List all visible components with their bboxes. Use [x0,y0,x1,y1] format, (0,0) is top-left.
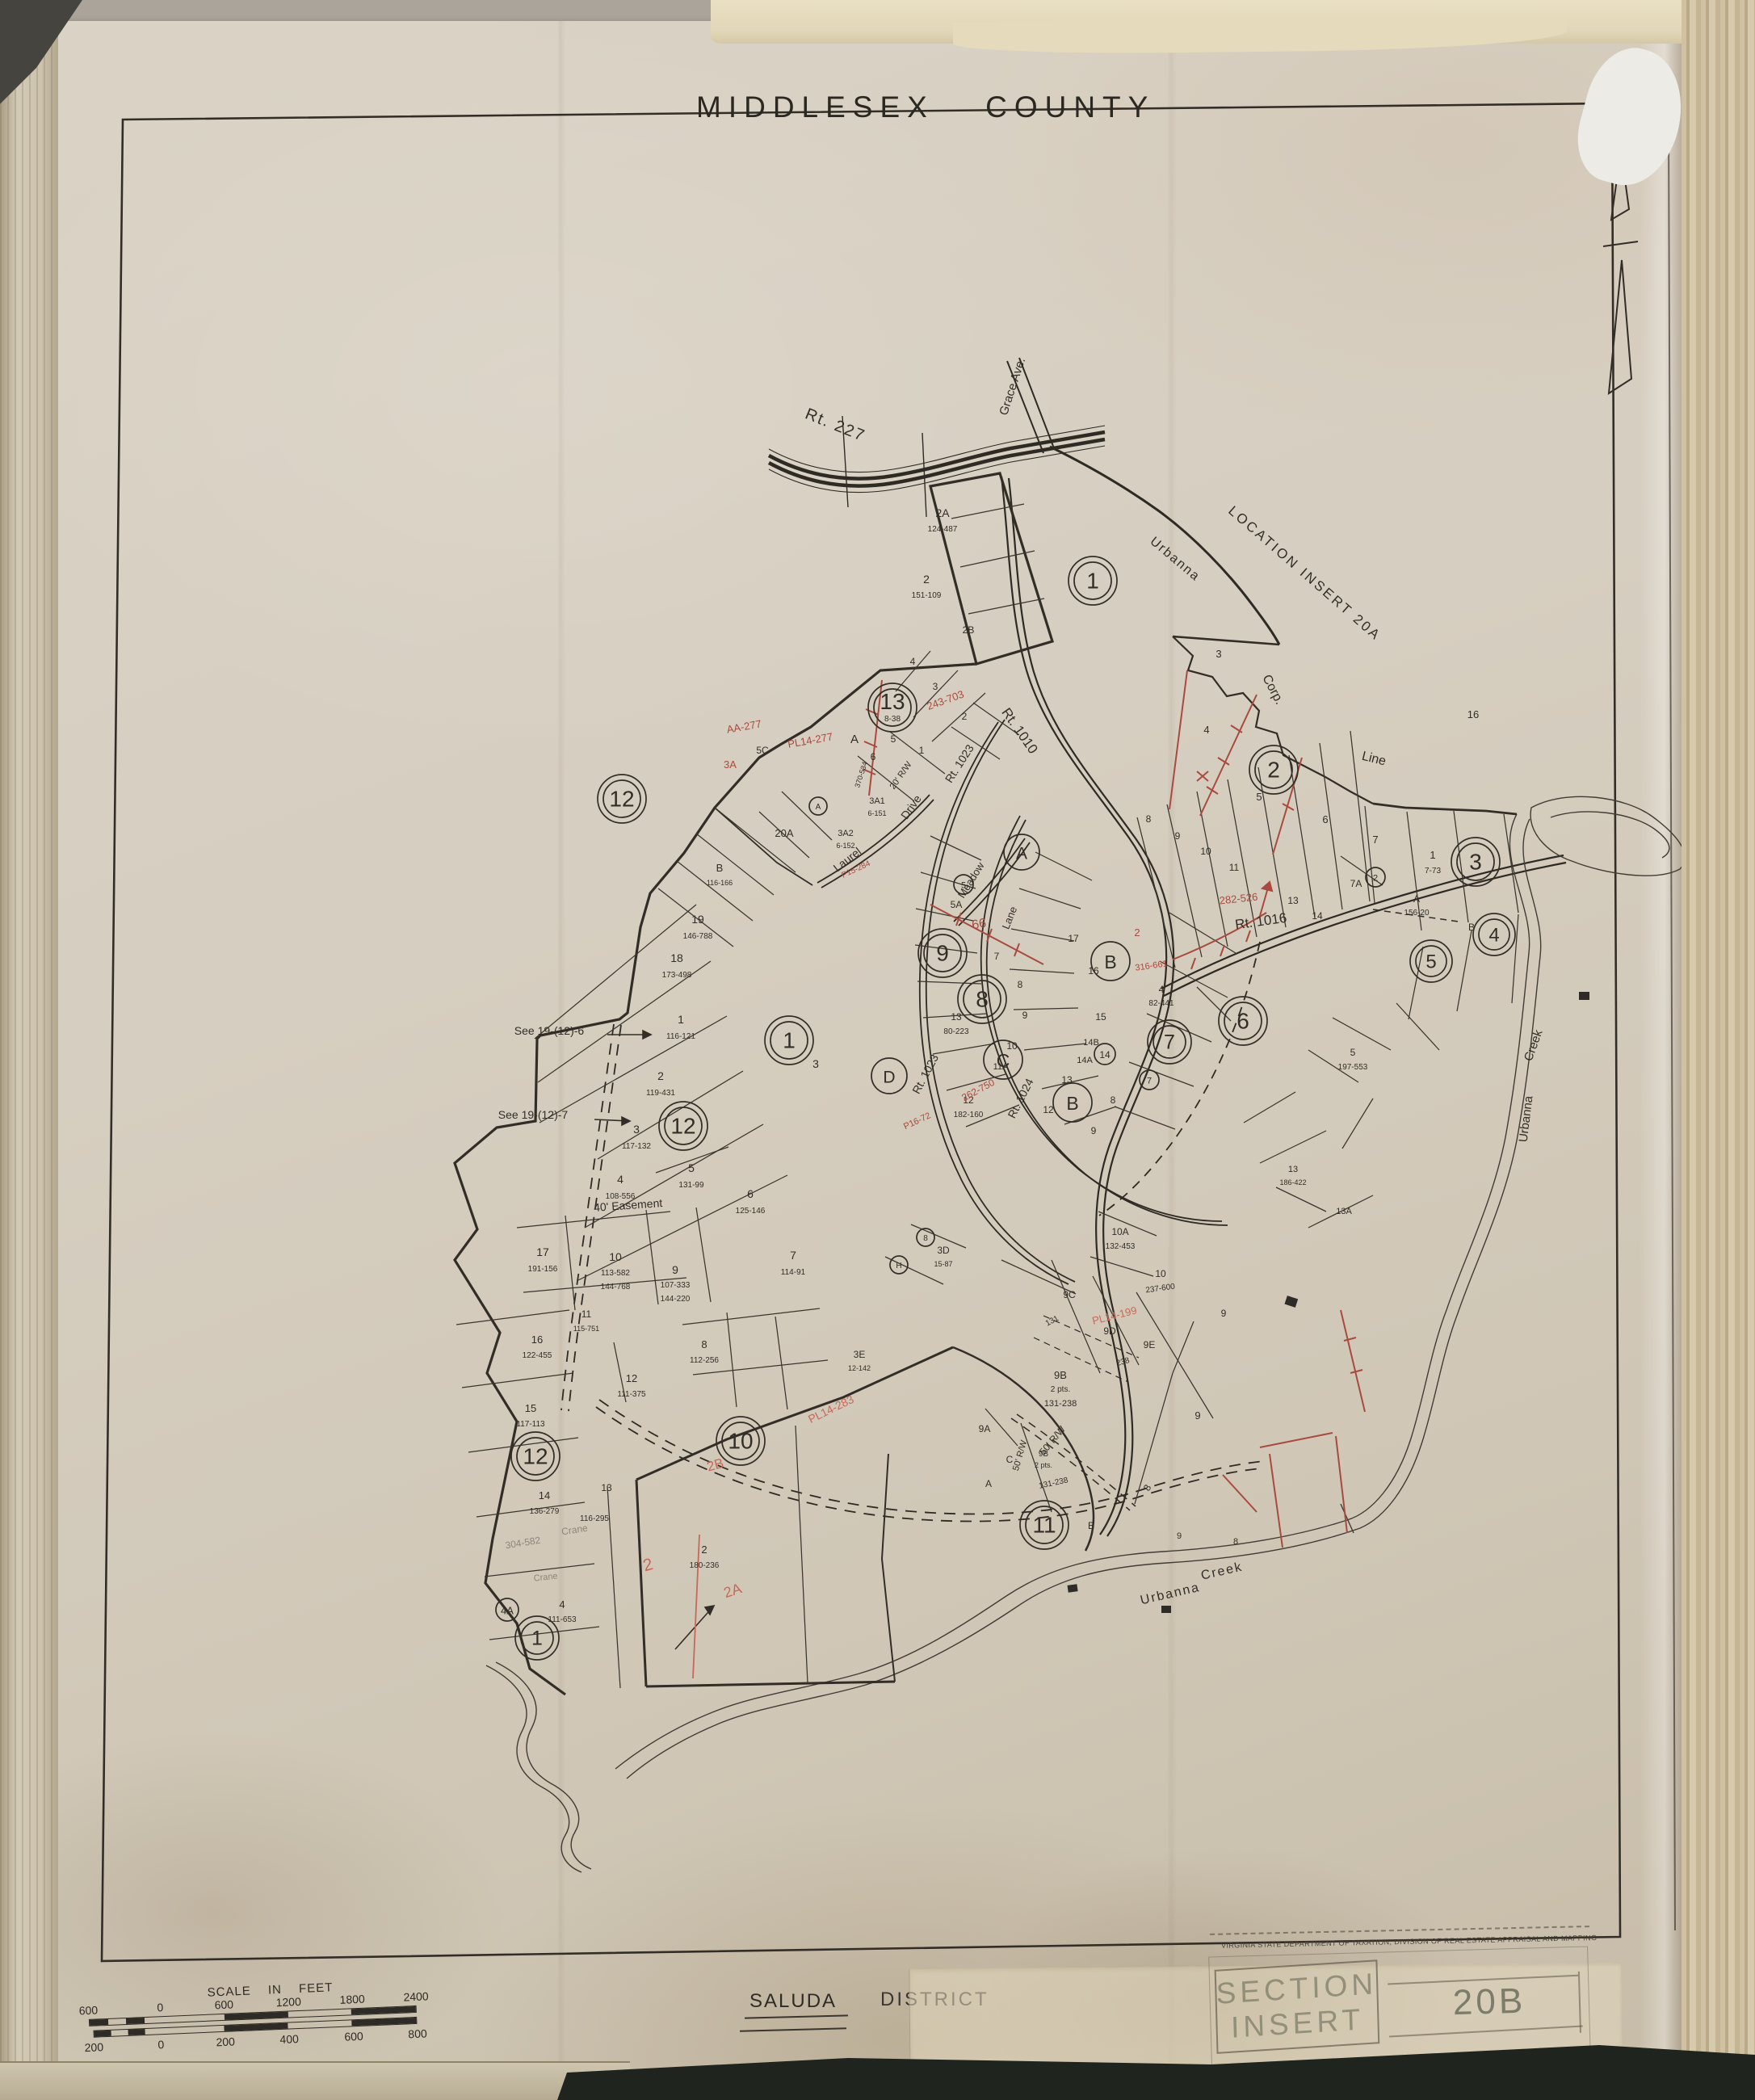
map-label: 370-534 [853,761,869,789]
stamp-box: SECTION INSERT [1215,1959,1380,2054]
scale-tick: 1800 [339,1993,365,2006]
map-label: 9 [1221,1308,1227,1319]
map-circled-number: 9 [918,929,967,977]
map-label: PL14-199 [1091,1304,1138,1327]
svg-text:12: 12 [523,1444,548,1469]
map-label: 82-441 [1148,999,1174,1008]
map-label: 182-160 [954,1111,984,1119]
map-label: 2A [935,506,950,519]
map-label: 11 [582,1308,592,1320]
map-label: 3A1 [869,796,885,806]
map-label: B [716,862,724,874]
map-label: 10A [1111,1226,1128,1237]
svg-text:9: 9 [936,941,949,966]
map-label: 2 [1134,926,1140,939]
map-label: 2B [963,624,975,636]
map-circled-letter: 2 [1366,867,1385,887]
map-label: 186-422 [1279,1178,1306,1186]
map-label: 2 [962,711,968,722]
map-label: A [850,733,859,746]
map-label: C [1006,1454,1014,1465]
map-label: 2 pts. [1035,1461,1052,1469]
svg-text:4A: 4A [501,1604,514,1616]
map-label: 116-121 [666,1032,695,1041]
map-label: Creek [1199,1560,1244,1582]
svg-text:H: H [896,1262,901,1270]
map-label: 238 [1115,1356,1131,1368]
map-label: 20' R/W [888,759,914,791]
map-label: 5 [688,1161,695,1174]
sheet-number: 20B [1452,1981,1526,2024]
map-label: 8 [1141,1482,1154,1493]
map-circled-letter: 14 [1094,1044,1115,1065]
scale-tick: 600 [214,1997,233,2011]
map-label: 7 [994,951,1000,962]
map-label: 7 [790,1249,796,1262]
map-label: 2 [657,1069,664,1082]
map-label: 9 [1194,1409,1200,1422]
map-label: 282-526 [1219,891,1258,907]
map-circled-number: 12 [598,775,646,823]
svg-text:8-38: 8-38 [884,715,901,724]
map-label: 3A2 [838,829,854,838]
map-label: 3 [812,1057,819,1070]
map-label: A [1413,893,1420,905]
map-label: 3 [1215,648,1221,660]
map-label: 17 [536,1245,549,1258]
map-label: 1 [919,745,925,756]
map-label: 2B [705,1455,725,1475]
map-label: 15 [1095,1011,1106,1023]
scale-tick: 200 [84,2040,103,2054]
map-label: 180-236 [690,1561,720,1570]
svg-text:A: A [1016,844,1027,863]
red-annotations [693,670,1365,1678]
map-label: See 19-(12)-6 [514,1024,585,1037]
map-label: 131 [1044,1314,1060,1329]
dashed-easements [561,909,1459,1522]
map-circled-number: 12 [511,1432,560,1480]
map-label: 13 [951,1011,962,1023]
map-label: 15-87 [934,1260,952,1268]
map-label: 107-333 [661,1281,691,1290]
svg-text:C: C [997,1050,1010,1071]
map-label: 131-99 [678,1181,704,1190]
map-label: 3A [724,758,737,771]
map-label: 7A [1350,878,1362,889]
map-label: 4 [617,1173,623,1186]
map-circled-letter: C [984,1040,1022,1079]
map-label: 6 [871,751,876,762]
map-label: 7-73 [1425,867,1441,876]
svg-text:12: 12 [609,787,634,812]
map-label: 8 [1146,813,1152,825]
map-label: 316-661 [1135,959,1169,973]
svg-text:B: B [1066,1093,1078,1114]
map-label: 146-788 [683,932,713,941]
map-label: 144-768 [601,1283,631,1291]
map-label: 108-556 [606,1192,636,1201]
map-label: 156-20 [1404,909,1430,918]
stamp-rule [1578,1972,1581,2033]
map-label: 9 [1091,1125,1097,1136]
map-label: 13 [1287,895,1299,906]
map-label: Rt. 227 [803,405,868,446]
district-name: SALUDA [749,1990,837,2013]
map-label: 7 [1372,834,1378,846]
map-circled-letter: A [809,797,827,815]
map-label: 1 [1430,849,1435,861]
map-label: 15 [525,1402,536,1414]
map-label: 6-151 [867,809,886,817]
svg-text:B: B [1104,951,1116,972]
map-circled-number: 1 [765,1016,813,1065]
map-label: 4 [1203,724,1209,736]
page-stack-left [0,0,58,2100]
map-label: 3D [937,1245,950,1256]
svg-text:A: A [816,803,821,812]
map-label: 50' R/W [1011,1438,1029,1472]
svg-text:7: 7 [1164,1031,1175,1054]
map-label: 80-223 [943,1027,969,1036]
map-label: See 19-(12)-7 [498,1108,569,1121]
map-label: 9C [1063,1289,1076,1300]
map-label: 243-703 [925,688,965,712]
map-label: 116-166 [707,879,733,887]
map-label: 9 [1175,830,1181,842]
map-label: 9A [979,1423,991,1434]
map-linework: Rt. 227Grace Ave.UrbannaLOCATION INSERT … [0,0,1755,2100]
map-label: 119-431 [646,1089,675,1098]
map-label: 115-751 [573,1325,599,1333]
map-label: 9D [1103,1325,1116,1337]
map-label: 8 [1018,979,1023,990]
map-circled-number: 6 [1219,997,1267,1045]
map-label: 9 [672,1263,678,1276]
map-label: 2 [923,573,930,586]
map-circled-letter: 7 [1140,1070,1159,1090]
map-circled-number: 4 [1473,913,1515,955]
map-label: 19 [691,913,704,926]
svg-text:2: 2 [1373,874,1378,884]
north-arrow-icon [1603,150,1638,393]
map-label: 66 [971,917,988,933]
svg-text:12: 12 [670,1114,695,1139]
svg-text:14: 14 [1099,1049,1111,1060]
scale-tick: 1200 [275,1995,301,2009]
map-label: 125-146 [736,1207,766,1216]
svg-text:2: 2 [1267,758,1280,783]
map-label: 12 [1043,1104,1054,1115]
scale-tick: 0 [157,2038,164,2051]
svg-text:6: 6 [1236,1009,1249,1034]
map-label: 1 [678,1013,684,1026]
svg-text:4: 4 [1488,924,1499,946]
map-label: 10 [1200,846,1211,857]
map-circled-letter: A [1004,834,1039,870]
map-label: AA-277 [726,717,762,735]
svg-text:1: 1 [783,1028,796,1053]
map-label: Creek [1522,1027,1546,1063]
map-label: 112-256 [690,1356,719,1365]
map-label: 237-600 [1145,1282,1176,1295]
map-label: 262-750 [959,1077,997,1103]
map-circled-number: 1 [1069,556,1117,605]
map-label: Grace Ave. [997,356,1028,418]
map-label: Line [1360,750,1388,769]
map-label: 17 [1068,933,1079,944]
page-stack-right [1682,0,1755,2100]
map-label: 4 [1159,984,1165,995]
map-circled-letter: 4A [496,1598,519,1621]
map-circled-letter: B [1091,942,1130,981]
map-label: 2 [701,1543,707,1556]
map-circled-number: 2 [1249,745,1298,794]
map-label: 2A [722,1580,744,1601]
svg-text:1: 1 [1086,569,1099,594]
map-label: P16-72 [902,1111,932,1132]
map-label: 9 [1177,1531,1182,1541]
photo-of-tax-map-page: Rt. 227Grace Ave.UrbannaLOCATION INSERT … [0,0,1755,2100]
scale-tick: 200 [216,2035,235,2048]
map-label: 14 [1312,910,1323,922]
map-label: 5C [756,745,769,756]
page-title: MIDDLESEX COUNTY [696,90,1155,124]
map-label: 3 [933,681,938,692]
map-annotations: Rt. 227Grace Ave.UrbannaLOCATION INSERT … [496,64,1743,1660]
map-label: 6 [1322,813,1328,825]
map-label: Urbanna [1517,1094,1536,1143]
svg-text:10: 10 [728,1429,753,1454]
map-label: 8 [1111,1094,1116,1106]
svg-text:13: 13 [880,689,905,714]
map-circled-letter: D [871,1058,907,1094]
svg-text:8: 8 [976,987,989,1012]
scale-tick: 800 [408,2026,427,2040]
map-label: 151-109 [912,591,942,600]
map-label: 5A [951,899,963,910]
map-label: Crane [533,1571,558,1583]
map-circled-letter: B [1053,1083,1092,1122]
map-label: 16 [1467,708,1479,720]
svg-text:1: 1 [531,1627,543,1650]
map-circled-letter: H [890,1256,908,1274]
map-label: 8 [1233,1537,1238,1547]
map-label: 304-582 [505,1535,542,1552]
map-label: 2 [641,1555,655,1575]
map-label: 5 [1256,791,1262,803]
map-label: 5 [891,733,896,745]
svg-text:5: 5 [961,881,966,891]
map-label: 14 [539,1489,550,1501]
map-label: 131-238 [1038,1476,1069,1490]
map-label: 13 [601,1482,612,1493]
map-label: PL14-277 [787,730,833,750]
map-label: Crane [561,1522,589,1538]
map-label: Rt. 1016 [1234,910,1287,933]
map-label: 18 [670,951,683,964]
road-rt1023 [920,720,1075,1284]
map-label: 131-238 [1044,1399,1077,1409]
stamp-rule [1389,2026,1583,2038]
building-symbols [1068,992,1589,1613]
road-rt1010 [1001,477,1173,1536]
map-label: 13 [1288,1165,1298,1174]
map-label: 117-132 [622,1142,651,1151]
map-circled-number: 5 [1410,940,1452,982]
map-label: 3 [633,1123,640,1136]
svg-text:3: 3 [1469,850,1482,875]
map-label: Urbanna [1139,1581,1201,1608]
map-label: 10 [1155,1268,1166,1279]
scale-tick: 400 [279,2032,299,2046]
map-label: 132-453 [1106,1242,1136,1251]
scale-tick: 2400 [403,1989,429,2003]
underlying-page [0,2061,630,2100]
map-label: 8 [701,1338,707,1350]
map-label: 12-142 [848,1364,871,1372]
map-label: LOCATION INSERT 20A [1225,503,1384,644]
map-label: 13A [1336,1207,1352,1216]
svg-text:D: D [883,1068,895,1086]
map-label: 144-220 [661,1295,691,1304]
scale-tick: 0 [157,2001,163,2014]
map-label: A [985,1478,992,1489]
map-label: 4 [559,1598,565,1611]
road-rt227 [769,358,1279,645]
map-label: B [1088,1520,1094,1531]
map-label: 14A [1077,1056,1093,1065]
map-label: 124-487 [928,525,958,534]
map-circled-number: 12 [659,1102,707,1150]
map-circled-number: 3 [1451,838,1500,886]
map-label: 10 [609,1250,622,1263]
scale-tick: 600 [344,2030,363,2043]
map-label: 122-455 [523,1351,552,1360]
map-label: 191-156 [528,1265,558,1274]
map-label: 9B [1039,1450,1049,1459]
svg-text:11: 11 [1032,1513,1056,1538]
map-label: 9B [1054,1369,1067,1381]
map-label: Drive [898,792,924,821]
road-rt1016 [1161,855,1566,996]
map-label: 173-498 [662,971,692,980]
map-label: 6 [747,1187,754,1200]
map-label: 11 [1229,862,1240,873]
stamp-word-2: INSERT [1231,2002,1365,2045]
map-label: 4 [910,656,916,667]
map-label: 117-113 [516,1420,545,1429]
map-label: Corp. [1259,673,1286,708]
svg-text:5: 5 [1425,951,1436,972]
map-circled-number: 11 [1020,1501,1069,1549]
scale-tick: 600 [78,2003,98,2017]
map-label: 113-582 [601,1269,630,1278]
map-label: 16 [531,1333,543,1346]
map-label: Lane [999,905,1019,930]
map-label: 5 [1350,1047,1356,1058]
map-label: 2 pts. [1051,1385,1070,1394]
map-circled-number: 138-38 [868,683,917,732]
map-label: 12 [626,1372,637,1384]
map-label: 14B [1083,1038,1099,1048]
map-label: Rt. 1010 [998,705,1040,757]
svg-text:8: 8 [923,1234,928,1243]
map-circled-number: 7 [1148,1020,1191,1064]
parcel-lines [456,504,1518,1688]
map-label: 111-375 [617,1390,646,1399]
map-label: 197-553 [1338,1063,1368,1072]
map-label: 9E [1144,1339,1156,1350]
map-label: 20A [775,827,793,839]
map-label: 114-91 [781,1268,806,1277]
svg-text:7: 7 [1147,1077,1152,1086]
map-label: 3E [854,1349,866,1360]
map-label: 136-279 [530,1507,560,1516]
map-label: 9 [1022,1010,1028,1021]
map-label: 6-152 [836,842,854,850]
